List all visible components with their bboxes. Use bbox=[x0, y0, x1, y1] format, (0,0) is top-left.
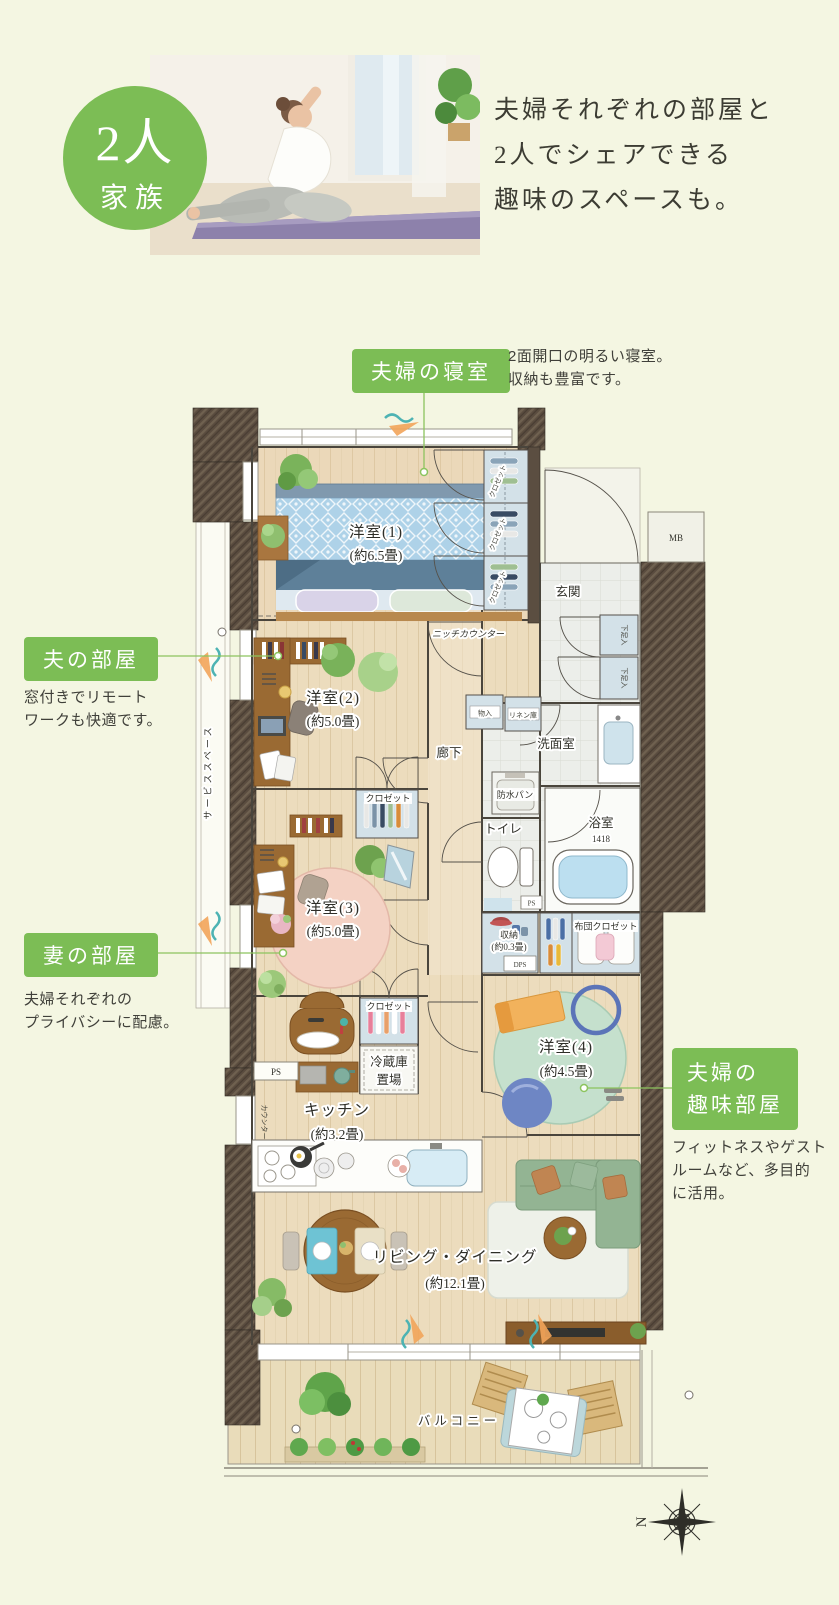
fridge-space: 冷蔵庫 置場 bbox=[360, 1046, 418, 1094]
drain-circle-2 bbox=[292, 1425, 300, 1433]
shoe-cabinets: 下足入 下足入 bbox=[600, 615, 638, 699]
ps-label-1: PS bbox=[528, 900, 536, 908]
room-label-bedroom4: 洋室(4) bbox=[539, 1038, 593, 1056]
family-badge: 2人 家族 bbox=[63, 86, 207, 230]
room-label-bathroom: 浴室 bbox=[588, 815, 613, 830]
room-label-service-space: サービススペース bbox=[203, 725, 213, 820]
callout-wife-label: 妻の部屋 bbox=[24, 933, 158, 977]
futon-closet-label: 布団クロゼット bbox=[574, 921, 637, 932]
kitchen-counter bbox=[252, 1140, 482, 1192]
counter-label: カウンター bbox=[260, 1105, 269, 1140]
room-label-balcony: バルコニー bbox=[418, 1414, 500, 1428]
futon-closet: 布団クロゼット bbox=[540, 913, 640, 973]
callout-wife-desc: 夫婦それぞれの プライバシーに配慮。 bbox=[24, 988, 179, 1034]
room-label-bedroom3: 洋室(3) bbox=[306, 899, 360, 917]
room-size-bedroom4: (約4.5畳) bbox=[540, 1064, 593, 1079]
badge-line2: 家族 bbox=[63, 176, 207, 216]
room-size-bedroom1: (約6.5畳) bbox=[350, 548, 403, 563]
room-label-toilet: トイレ bbox=[484, 822, 522, 836]
room-size-living: (約12.1畳) bbox=[425, 1276, 485, 1291]
callout-bedroom-label: 夫婦の寝室 bbox=[352, 349, 510, 393]
washroom-vanity bbox=[598, 705, 640, 783]
room-size-bedroom2: (約5.0畳) bbox=[307, 714, 360, 729]
callout-hobby-desc: フィットネスやゲスト ルームなど、多目的 に活用。 bbox=[672, 1136, 827, 1205]
bathtub bbox=[553, 850, 633, 904]
mb-label: MB bbox=[669, 533, 683, 543]
callout-bedroom-desc: 2面開口の明るい寝室。 収納も豊富です。 bbox=[508, 345, 672, 391]
ps-label-2: PS bbox=[271, 1067, 281, 1077]
storage-small-label: 物入 bbox=[478, 709, 492, 718]
entry-porch bbox=[545, 468, 640, 563]
badge-line1: 2人 bbox=[63, 118, 207, 168]
callout-husband-label: 夫の部屋 bbox=[24, 637, 158, 681]
tv-board bbox=[506, 1322, 646, 1344]
room-label-hallway: 廊下 bbox=[436, 745, 461, 760]
room-label-living: リビング・ダイニング bbox=[372, 1248, 537, 1266]
room-label-washroom: 洗面室 bbox=[537, 736, 575, 751]
linen-label: リネン庫 bbox=[509, 711, 537, 720]
fridge-label-1: 冷蔵庫 bbox=[370, 1055, 408, 1069]
room-label-bathroom-size: 1418 bbox=[592, 834, 611, 844]
room-label-bedroom1: 洋室(1) bbox=[349, 523, 403, 541]
room-label-bedroom2: 洋室(2) bbox=[306, 689, 360, 707]
dps-label: DPS bbox=[514, 961, 527, 969]
kitchen-closet: クロゼット bbox=[360, 998, 418, 1044]
hall-storage: 物入 リネン庫 bbox=[466, 695, 541, 731]
room-size-kitchen: (約3.2畳) bbox=[311, 1127, 364, 1142]
storage-size-label: (約0.3畳) bbox=[491, 941, 526, 952]
waterproof-pan-label: 防水パン bbox=[497, 789, 533, 800]
kitchen-small-counter bbox=[296, 1062, 358, 1092]
bedroom2-closet: クロゼット bbox=[356, 790, 418, 838]
callout-hobby-label: 夫婦の 趣味部屋 bbox=[672, 1048, 798, 1130]
drain-circle-3 bbox=[685, 1391, 693, 1399]
callout-husband-desc: 窓付きでリモート ワークも快適です。 bbox=[24, 686, 162, 732]
shoe-cabinet-label-1: 下足入 bbox=[620, 625, 628, 646]
north-label: N bbox=[634, 1516, 650, 1527]
washer-pan: 防水パン bbox=[492, 772, 539, 814]
drain-circle-1 bbox=[218, 628, 226, 636]
storage-small-room: 収納 (約0.3畳) DPS bbox=[482, 913, 538, 973]
fridge-label-2: 置場 bbox=[376, 1073, 401, 1087]
room-size-bedroom3: (約5.0畳) bbox=[307, 924, 360, 939]
shoe-cabinet-label-2: 下足入 bbox=[620, 668, 628, 689]
closet-label-5: クロゼット bbox=[366, 1001, 411, 1012]
compass-icon: N bbox=[634, 1488, 716, 1556]
room-label-kitchen: キッチン bbox=[304, 1102, 370, 1119]
storage-label: 収納 bbox=[500, 929, 518, 940]
page: 2人 家族 夫婦それぞれの部屋と 2人でシェアできる 趣味のスペースも。 bbox=[0, 0, 839, 1605]
bedroom1-closets: クロゼット クロゼット クロゼット bbox=[484, 450, 528, 610]
room-label-entrance: 玄関 bbox=[555, 584, 580, 599]
closet-label-4: クロゼット bbox=[365, 793, 410, 804]
niche-counter-label: ニッチカウンター bbox=[432, 629, 505, 639]
